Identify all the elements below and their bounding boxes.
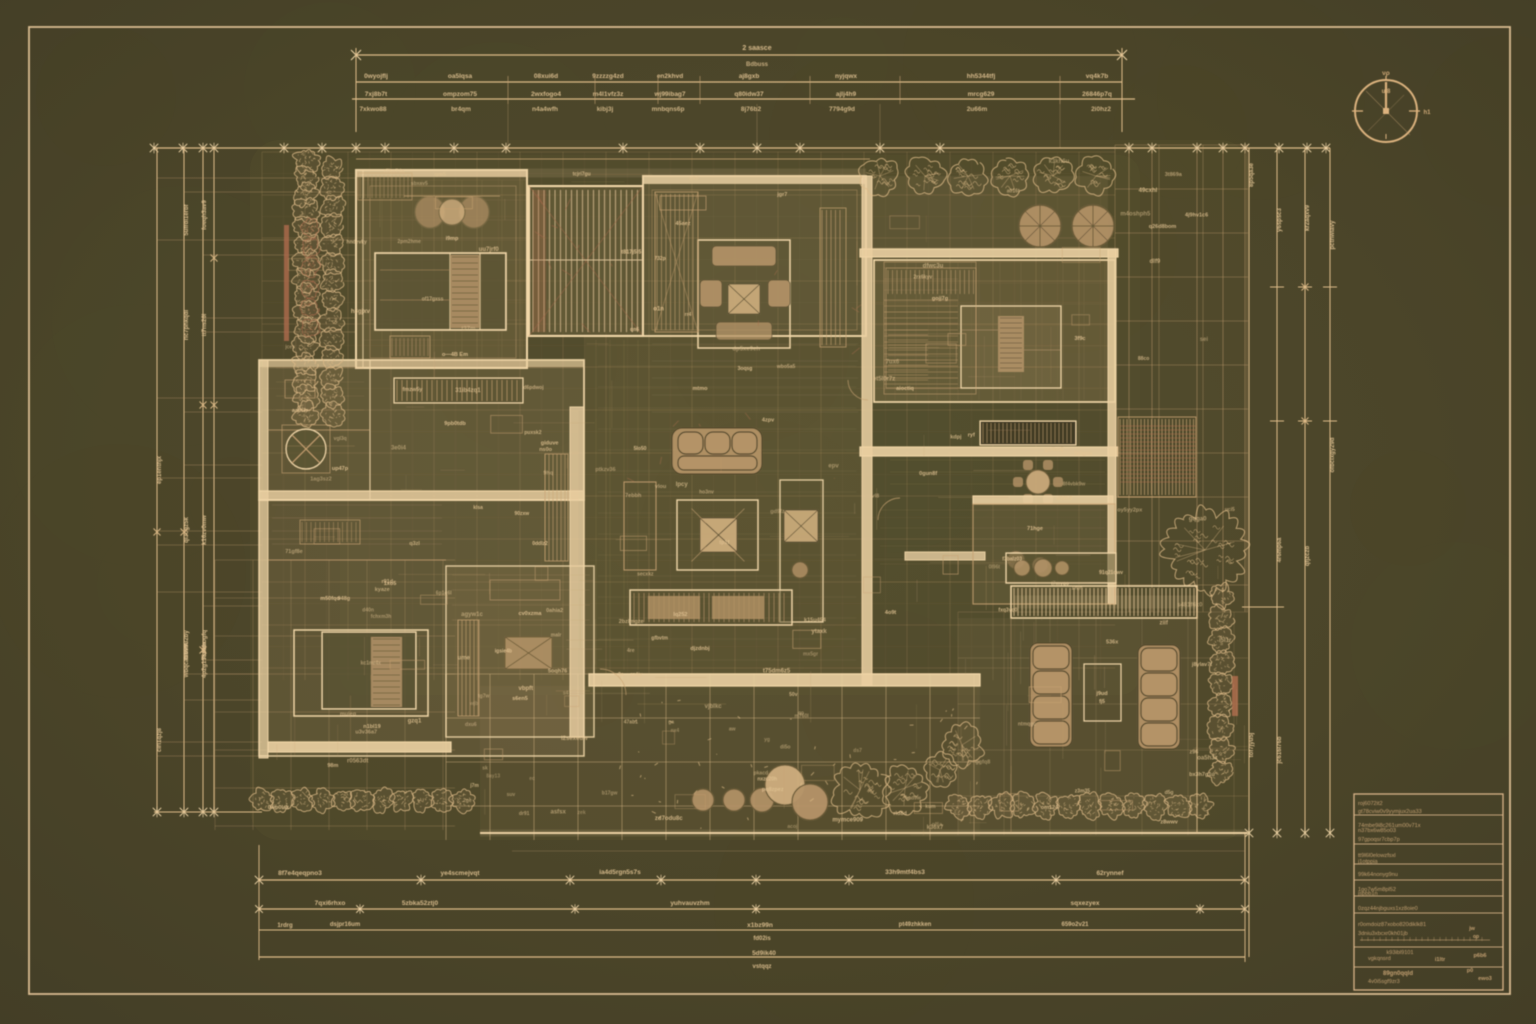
svg-text:4re: 4re	[627, 648, 635, 654]
svg-text:sqxezyex: sqxezyex	[1071, 900, 1100, 907]
svg-text:kum: kum	[925, 804, 936, 810]
svg-text:oa5h3z: oa5h3z	[1197, 755, 1217, 761]
svg-text:ajlj4h9: ajlj4h9	[836, 91, 857, 98]
svg-text:t75dm6z5: t75dm6z5	[763, 668, 791, 674]
svg-text:33h9mtf4bs3: 33h9mtf4bs3	[885, 869, 925, 876]
svg-text:m4oshph5: m4oshph5	[1120, 212, 1151, 218]
svg-text:o1n: o1n	[653, 307, 664, 313]
svg-text:q3zl: q3zl	[409, 541, 420, 547]
svg-text:71gf8e: 71gf8e	[285, 549, 302, 555]
svg-text:659o2v21: 659o2v21	[1061, 922, 1089, 928]
svg-text:536x: 536x	[1106, 639, 1119, 645]
svg-text:lpcy: lpcy	[676, 482, 689, 488]
svg-text:gt78cviw0v9yymjux2ua33: gt78cviw0v9yymjux2ua33	[1358, 809, 1422, 815]
svg-text:97gpoqsr7cbp7p: 97gpoqsr7cbp7p	[1358, 837, 1400, 843]
svg-text:cv0xzma: cv0xzma	[519, 611, 543, 617]
svg-text:pt49zhkken: pt49zhkken	[899, 922, 932, 928]
svg-text:9pb0tdb: 9pb0tdb	[444, 421, 466, 427]
svg-text:vgl3q: vgl3q	[334, 436, 347, 442]
svg-text:jw: jw	[1468, 926, 1476, 932]
svg-text:pctnwlavy: pctnwlavy	[1330, 220, 1336, 250]
svg-text:ric7phkqdl: ric7phkqdl	[184, 309, 190, 340]
svg-text:yuhvauvzhm: yuhvauvzhm	[670, 900, 710, 907]
svg-text:3oqsg: 3oqsg	[738, 366, 753, 372]
svg-text:ia4d5rgn5s7s: ia4d5rgn5s7s	[599, 869, 641, 876]
svg-text:nyjqwx: nyjqwx	[835, 73, 857, 80]
svg-text:qad9w: qad9w	[905, 796, 921, 802]
svg-text:r0563dt: r0563dt	[347, 759, 368, 765]
svg-text:47ab1: 47ab1	[624, 719, 638, 725]
svg-text:2pm2hme: 2pm2hme	[398, 239, 422, 245]
svg-text:qfjzczb: qfjzczb	[1305, 546, 1311, 567]
svg-text:kyaze: kyaze	[375, 587, 390, 593]
svg-text:vstqqz: vstqqz	[752, 964, 771, 970]
svg-text:fxq3vq0: fxq3vq0	[998, 608, 1017, 614]
svg-text:ryf: ryf	[968, 432, 975, 438]
svg-text:pq8zpez: pq8zpez	[762, 787, 784, 793]
svg-text:49cxhl: 49cxhl	[1139, 188, 1158, 194]
svg-text:tp1f: tp1f	[719, 540, 729, 546]
svg-text:dr91: dr91	[519, 811, 530, 817]
svg-text:5lo50: 5lo50	[634, 446, 647, 452]
svg-text:gfbvtm: gfbvtm	[651, 636, 668, 642]
svg-text:u9s: u9s	[615, 672, 624, 678]
svg-text:0ddlz2: 0ddlz2	[532, 541, 548, 547]
svg-text:dfwc3u: dfwc3u	[923, 263, 944, 269]
svg-text:d5g: d5g	[1165, 790, 1174, 796]
svg-text:7xkwo88: 7xkwo88	[359, 106, 386, 113]
svg-text:zz4jv: zz4jv	[630, 672, 642, 678]
svg-text:5oqh76: 5oqh76	[548, 668, 567, 674]
svg-text:asfsx: asfsx	[550, 810, 566, 816]
svg-text:qo: qo	[798, 711, 804, 717]
svg-text:d40n: d40n	[362, 608, 374, 614]
svg-text:ep1enthjx: ep1enthjx	[157, 455, 163, 484]
svg-text:i9mp: i9mp	[446, 236, 459, 242]
svg-text:3dniu3xbcxr0kh01jb: 3dniu3xbcxr0kh01jb	[1358, 931, 1408, 937]
svg-text:ofbcixgy29d: ofbcixgy29d	[1330, 437, 1336, 472]
svg-text:71hge: 71hge	[1027, 526, 1043, 532]
svg-text:8f7e4qeqpno3: 8f7e4qeqpno3	[278, 870, 322, 877]
svg-text:fchxm3h: fchxm3h	[371, 614, 392, 620]
svg-text:k16zv0mw: k16zv0mw	[202, 515, 208, 545]
svg-text:ul8: ul8	[1382, 89, 1391, 95]
svg-text:rr4: rr4	[685, 312, 692, 318]
svg-text:uu7jrf0: uu7jrf0	[479, 247, 500, 253]
svg-text:2 saasce: 2 saasce	[742, 45, 771, 52]
svg-text:2bzlmgze: 2bzlmgze	[619, 619, 644, 625]
svg-text:ggfq8: ggfq8	[975, 759, 990, 765]
svg-text:j9ud: j9ud	[1095, 691, 1107, 697]
svg-text:o—4B Em: o—4B Em	[442, 352, 468, 358]
svg-text:0wyojflj: 0wyojflj	[364, 73, 388, 80]
svg-text:Bdbuss: Bdbuss	[746, 62, 769, 68]
svg-text:hh5344tfj: hh5344tfj	[967, 73, 996, 80]
svg-text:r0omdoiz87xobo820diklk81: r0omdoiz87xobo820diklk81	[1358, 922, 1426, 928]
svg-text:n37bx6w85o03: n37bx6w85o03	[1358, 828, 1396, 834]
svg-text:kc1mr4x: kc1mr4x	[361, 661, 382, 667]
svg-text:f3balz03: f3balz03	[1002, 556, 1022, 562]
svg-text:7xj8b7t: 7xj8b7t	[365, 91, 388, 98]
svg-text:4j9hv1c6: 4j9hv1c6	[1185, 212, 1208, 218]
svg-text:wjb: wjb	[469, 701, 478, 707]
svg-text:q80idw37: q80idw37	[734, 91, 764, 98]
svg-text:puxsk2: puxsk2	[524, 430, 541, 436]
svg-text:tt7ns26l: tt7ns26l	[202, 313, 208, 336]
svg-text:aj8gxb: aj8gxb	[739, 73, 760, 80]
svg-text:9hq: 9hq	[543, 470, 553, 476]
svg-text:djzdnbj: djzdnbj	[690, 646, 710, 652]
svg-text:clri1qzj8: clri1qzj8	[157, 727, 163, 752]
svg-text:vq4k7b: vq4k7b	[1086, 73, 1108, 80]
svg-text:4o9t: 4o9t	[885, 610, 896, 616]
svg-text:fa1goa: fa1goa	[1074, 451, 1093, 457]
svg-text:x1bz99n: x1bz99n	[747, 922, 773, 929]
svg-text:zek: zek	[578, 810, 586, 816]
svg-text:ptkzv36: ptkzv36	[595, 467, 615, 473]
svg-text:jc616i76b: jc616i76b	[1277, 736, 1283, 764]
svg-text:oa5lqsa: oa5lqsa	[448, 73, 473, 80]
svg-text:gzq1: gzq1	[408, 719, 422, 725]
svg-text:z3m35: z3m35	[1075, 788, 1091, 794]
svg-text:acoj: acoj	[787, 824, 798, 830]
svg-text:aw: aw	[729, 726, 736, 732]
svg-text:malr: malr	[551, 633, 562, 639]
svg-text:qi3ogz5k: qi3ogz5k	[184, 517, 190, 543]
svg-text:mrcg629: mrcg629	[968, 91, 995, 98]
svg-text:tg7w: tg7w	[478, 694, 490, 700]
svg-text:7794g9d: 7794g9d	[829, 106, 855, 113]
svg-text:om124: om124	[1041, 805, 1059, 811]
svg-text:agyw1c: agyw1c	[461, 612, 483, 618]
svg-text:mymce909: mymce909	[832, 817, 863, 823]
svg-text:90zxw: 90zxw	[514, 511, 529, 517]
svg-text:lq252: lq252	[673, 612, 687, 618]
svg-text:1ag3sz2: 1ag3sz2	[310, 476, 331, 482]
svg-text:gd9fz: gd9fz	[770, 509, 785, 515]
svg-text:2i0hz2: 2i0hz2	[1091, 106, 1111, 113]
svg-text:98m: 98m	[327, 763, 338, 769]
svg-text:klsa: klsa	[473, 505, 483, 511]
svg-text:k15u454: k15u454	[804, 617, 827, 623]
svg-text:pkacd: pkacd	[754, 770, 768, 776]
svg-text:a4d: a4d	[689, 176, 698, 182]
svg-text:s6en5: s6en5	[512, 696, 528, 702]
svg-text:bx3h7g1u: bx3h7g1u	[1189, 772, 1215, 778]
svg-text:fd02is: fd02is	[753, 936, 771, 942]
svg-text:k36x7: k36x7	[927, 825, 944, 831]
svg-text:j8ylav7t: j8ylav7t	[1191, 662, 1212, 668]
svg-text:j1otppia: j1otppia	[1357, 859, 1378, 865]
svg-text:n4a4wfh: n4a4wfh	[532, 106, 558, 113]
svg-text:en2khvd: en2khvd	[657, 73, 683, 80]
svg-text:0zqz44njbguxs1xz8oie0: 0zqz44njbguxs1xz8oie0	[1358, 906, 1418, 912]
svg-text:nxzc20h: nxzc20h	[757, 776, 777, 782]
svg-text:r7ko74a: r7ko74a	[384, 168, 406, 174]
svg-text:t817j5l5: t817j5l5	[621, 250, 641, 256]
svg-text:mujeq: mujeq	[340, 711, 356, 717]
svg-text:3e0i4: 3e0i4	[391, 445, 407, 451]
svg-text:ziif: ziif	[1159, 621, 1168, 627]
svg-text:z8wwv: z8wwv	[1160, 820, 1178, 826]
svg-text:tof7jyu5j: tof7jyu5j	[1249, 732, 1255, 757]
svg-text:wbo5a5: wbo5a5	[776, 364, 796, 370]
svg-text:i1ltr: i1ltr	[1435, 957, 1446, 963]
svg-text:0ahia2: 0ahia2	[546, 608, 563, 614]
svg-text:p0: p0	[1467, 968, 1473, 974]
svg-text:suv: suv	[507, 792, 516, 798]
svg-text:d36h3: d36h3	[1056, 496, 1072, 502]
svg-text:i5i1r: i5i1r	[1219, 638, 1232, 644]
svg-text:kibj3j: kibj3j	[597, 106, 614, 113]
svg-text:jces: jces	[284, 344, 295, 350]
svg-text:h1: h1	[1423, 110, 1431, 116]
svg-text:sei: sei	[1200, 337, 1209, 343]
svg-text:ntmqgc: ntmqgc	[1018, 721, 1036, 727]
svg-text:732p: 732p	[654, 256, 665, 262]
svg-text:tcjri7gu: tcjri7gu	[573, 172, 591, 178]
svg-text:up47p: up47p	[332, 466, 349, 472]
svg-text:br4qm: br4qm	[451, 106, 471, 113]
svg-text:di5o: di5o	[780, 744, 790, 750]
svg-text:foeqh3av9: foeqh3av9	[202, 200, 208, 230]
svg-text:7ebbh: 7ebbh	[625, 493, 642, 499]
svg-text:jgr7: jgr7	[776, 192, 787, 198]
svg-text:3t869a: 3t869a	[1165, 172, 1183, 178]
svg-text:ns0o: ns0o	[539, 447, 552, 453]
svg-text:1hjh: 1hjh	[1071, 586, 1083, 592]
svg-text:948g: 948g	[338, 596, 351, 602]
svg-text:dsjpr16um: dsjpr16um	[330, 922, 360, 928]
svg-text:31ib4zq1: 31ib4zq1	[455, 388, 481, 394]
svg-text:u3v36a7: u3v36a7	[355, 730, 377, 736]
svg-text:4v0i5sgf9zr3: 4v0i5sgf9zr3	[1368, 979, 1400, 985]
svg-text:ytaxk: ytaxk	[811, 629, 827, 635]
svg-text:roj6072it2: roj6072it2	[1358, 801, 1383, 807]
svg-text:et5l0r7z: et5l0r7z	[873, 377, 895, 383]
svg-text:3f9c: 3f9c	[1074, 336, 1085, 342]
svg-text:3: 3	[1385, 110, 1388, 116]
svg-text:7qxi6rhxo: 7qxi6rhxo	[315, 900, 346, 907]
svg-text:q26d8bom: q26d8bom	[1149, 224, 1177, 230]
svg-text:secxkz: secxkz	[637, 572, 654, 578]
svg-text:08xui6d: 08xui6d	[534, 73, 558, 80]
svg-text:qn6: qn6	[630, 327, 639, 333]
svg-text:ume: ume	[458, 656, 471, 662]
svg-text:mx5gr: mx5gr	[803, 652, 818, 658]
svg-text:p6b6: p6b6	[1473, 953, 1486, 959]
svg-text:9zzzzg4zd: 9zzzzg4zd	[592, 73, 623, 80]
svg-text:fj5: fj5	[1099, 699, 1105, 705]
svg-text:ye4scmejvqt: ye4scmejvqt	[440, 870, 480, 877]
svg-text:vl8: vl8	[872, 494, 880, 500]
svg-text:8f4vbk9w: 8f4vbk9w	[1063, 481, 1086, 487]
svg-text:ga: ga	[668, 719, 674, 725]
svg-text:4r6mp6a: 4r6mp6a	[1277, 537, 1283, 562]
svg-text:5ufrdl1erbf: 5ufrdl1erbf	[184, 203, 190, 235]
svg-text:5zbka52ztj0: 5zbka52ztj0	[402, 900, 439, 907]
svg-text:uci5: uci5	[1225, 507, 1235, 513]
svg-text:l2sexeuw: l2sexeuw	[561, 736, 588, 742]
svg-text:0gun8f: 0gun8f	[919, 471, 937, 477]
svg-text:k3kh6u: k3kh6u	[1049, 159, 1070, 165]
svg-text:kr2aqxv9: kr2aqxv9	[1305, 204, 1311, 231]
svg-text:s481f6x0: s481f6x0	[1177, 602, 1203, 608]
svg-text:6p1q6l: 6p1q6l	[436, 591, 452, 597]
svg-text:d6pdwoj: d6pdwoj	[523, 385, 544, 391]
svg-text:26846p7q: 26846p7q	[1082, 91, 1112, 98]
svg-text:vgkqnsrd: vgkqnsrd	[1368, 956, 1391, 962]
svg-text:m4l1vfz3z: m4l1vfz3z	[593, 91, 624, 98]
svg-text:91q21owv: 91q21owv	[1099, 570, 1123, 576]
svg-text:ewo3: ewo3	[1478, 976, 1492, 982]
svg-text:dxu6: dxu6	[465, 722, 477, 728]
svg-text:gqga0: gqga0	[1189, 516, 1207, 522]
svg-text:oy5yy2px: oy5yy2px	[1117, 508, 1143, 514]
svg-text:dlf9: dlf9	[1149, 259, 1160, 265]
svg-text:t37m: t37m	[461, 326, 475, 332]
svg-text:n1bl19: n1bl19	[363, 724, 380, 730]
svg-text:mnbqns6p: mnbqns6p	[652, 106, 685, 113]
svg-text:2wxfogo4: 2wxfogo4	[531, 91, 561, 98]
svg-text:fmzw5y: fmzw5y	[402, 387, 423, 393]
svg-text:jspbb1n: jspbb1n	[1357, 891, 1378, 897]
svg-text:vlou: vlou	[655, 484, 666, 490]
svg-text:νρ: νρ	[1382, 70, 1390, 77]
svg-text:ec: ec	[529, 776, 535, 782]
svg-text:kdpj: kdpj	[950, 435, 962, 441]
svg-text:igsie4b: igsie4b	[495, 649, 512, 655]
svg-text:8p5qa3e: 8p5qa3e	[1249, 162, 1255, 187]
svg-text:ompzom75: ompzom75	[443, 91, 477, 98]
svg-text:a016t: a016t	[1007, 189, 1020, 195]
svg-text:vbpft: vbpft	[519, 686, 534, 692]
svg-text:yg: yg	[764, 737, 770, 743]
svg-text:r91d: r91d	[381, 579, 393, 585]
svg-text:y6spsc3: y6spsc3	[1277, 207, 1283, 231]
svg-text:of17gxss: of17gxss	[422, 296, 444, 302]
svg-text:99k64nonyg9nu: 99k64nonyg9nu	[1358, 872, 1398, 878]
svg-text:giduve: giduve	[541, 440, 559, 446]
svg-text:z96: z96	[1189, 749, 1198, 755]
svg-text:0wp0lak: 0wp0lak	[268, 805, 290, 811]
svg-text:ho3nv: ho3nv	[699, 489, 714, 495]
svg-text:2u66m: 2u66m	[967, 106, 988, 113]
svg-text:rld8d: rld8d	[893, 811, 906, 817]
svg-text:88co: 88co	[1138, 356, 1149, 362]
svg-text:89gn0qqld: 89gn0qqld	[1383, 971, 1413, 977]
svg-text:gcihn0: gcihn0	[1044, 447, 1064, 453]
svg-text:epv: epv	[828, 464, 839, 470]
svg-text:62rynnef: 62rynnef	[1096, 870, 1124, 877]
svg-text:5d9ik40: 5d9ik40	[752, 950, 776, 957]
svg-text:7ux6: 7ux6	[886, 360, 900, 366]
svg-text:0l96t: 0l96t	[989, 564, 1001, 570]
svg-text:ds7: ds7	[853, 748, 862, 754]
svg-text:b17gw: b17gw	[602, 790, 618, 796]
svg-text:1rdrg: 1rdrg	[277, 923, 293, 929]
svg-text:zd7odu8c: zd7odu8c	[655, 816, 683, 822]
svg-text:50v: 50v	[789, 692, 798, 698]
svg-text:2rx6kyv: 2rx6kyv	[914, 275, 933, 281]
svg-text:8j76b2: 8j76b2	[741, 106, 762, 113]
svg-text:j7m: j7m	[469, 783, 479, 789]
svg-text:sk: sk	[482, 765, 488, 771]
svg-text:wbqcab69m: wbqcab69m	[184, 643, 190, 678]
svg-text:h3gjxv: h3gjxv	[351, 309, 371, 315]
svg-text:4zpv: 4zpv	[762, 418, 775, 424]
svg-text:sbxav5: sbxav5	[411, 181, 428, 187]
svg-text:qm5: qm5	[435, 172, 446, 178]
svg-text:op: op	[1473, 934, 1479, 940]
svg-text:vjblkc: vjblkc	[705, 704, 723, 710]
svg-text:hndevky: hndevky	[347, 239, 368, 245]
svg-text:8ay13: 8ay13	[486, 774, 500, 780]
svg-text:dp5xe9eh: dp5xe9eh	[732, 346, 760, 352]
